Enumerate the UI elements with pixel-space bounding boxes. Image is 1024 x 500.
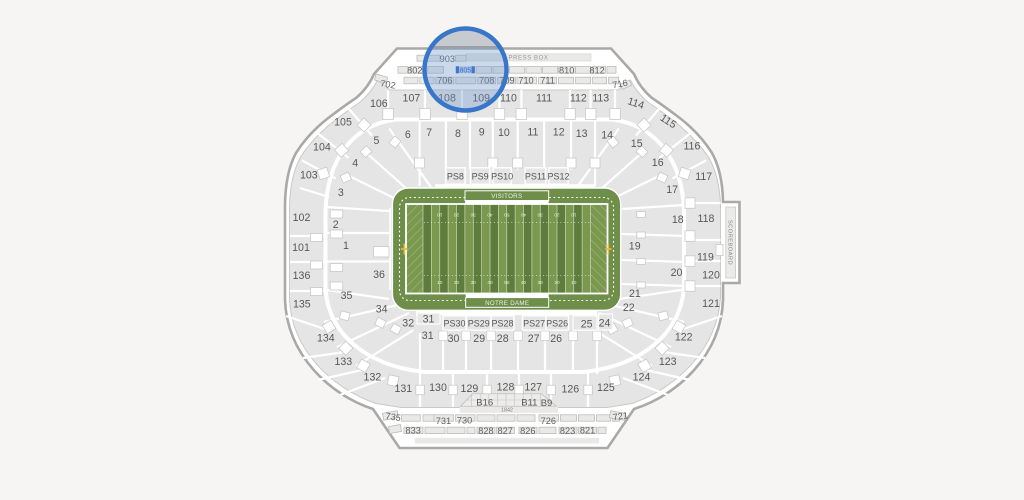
- svg-text:117: 117: [695, 171, 712, 183]
- svg-text:PS29: PS29: [468, 318, 490, 328]
- svg-text:10: 10: [571, 212, 577, 218]
- svg-text:710: 710: [518, 75, 533, 85]
- svg-text:40: 40: [521, 212, 527, 218]
- svg-text:21: 21: [629, 288, 641, 300]
- svg-text:3: 3: [338, 187, 344, 199]
- svg-text:31: 31: [422, 330, 434, 342]
- svg-text:823: 823: [560, 426, 575, 436]
- svg-text:121: 121: [702, 298, 720, 310]
- svg-text:31: 31: [423, 314, 435, 326]
- svg-text:PS30: PS30: [443, 318, 465, 328]
- svg-text:20: 20: [554, 280, 560, 286]
- svg-text:PS8: PS8: [447, 172, 464, 182]
- svg-text:110: 110: [500, 93, 517, 105]
- svg-text:2: 2: [333, 219, 339, 231]
- svg-text:125: 125: [597, 382, 615, 394]
- svg-text:131: 131: [394, 383, 412, 395]
- svg-text:136: 136: [293, 270, 311, 282]
- svg-text:PRESS BOX: PRESS BOX: [508, 56, 548, 62]
- svg-text:4: 4: [352, 158, 358, 170]
- svg-text:32: 32: [402, 318, 414, 330]
- svg-text:812: 812: [589, 66, 604, 76]
- svg-text:PS26: PS26: [546, 318, 568, 328]
- svg-text:802: 802: [407, 65, 422, 75]
- svg-text:30: 30: [470, 212, 476, 218]
- svg-text:132: 132: [364, 371, 382, 383]
- svg-text:735: 735: [385, 411, 402, 423]
- svg-text:1842: 1842: [501, 407, 513, 413]
- svg-text:PS11: PS11: [525, 172, 546, 182]
- svg-text:10: 10: [437, 212, 443, 218]
- svg-text:PS27: PS27: [523, 318, 545, 328]
- svg-text:102: 102: [293, 212, 311, 224]
- svg-text:PS12: PS12: [547, 172, 569, 182]
- svg-text:20: 20: [454, 212, 460, 218]
- svg-text:20: 20: [671, 267, 683, 279]
- svg-text:103: 103: [300, 169, 318, 181]
- svg-text:40: 40: [487, 280, 493, 286]
- svg-text:PS9: PS9: [472, 172, 489, 182]
- svg-text:118: 118: [698, 213, 715, 225]
- svg-text:123: 123: [659, 356, 677, 368]
- svg-text:7: 7: [426, 127, 432, 139]
- svg-text:5: 5: [373, 135, 379, 147]
- svg-text:113: 113: [592, 93, 609, 105]
- svg-text:28: 28: [497, 333, 509, 345]
- svg-text:50: 50: [504, 212, 510, 218]
- svg-text:119: 119: [697, 252, 714, 264]
- svg-text:10: 10: [571, 280, 577, 286]
- svg-text:12: 12: [553, 127, 565, 139]
- svg-text:124: 124: [633, 371, 651, 383]
- svg-text:107: 107: [403, 93, 421, 105]
- svg-text:40: 40: [487, 212, 493, 218]
- svg-text:126: 126: [561, 384, 579, 396]
- svg-text:104: 104: [313, 141, 331, 153]
- svg-text:40: 40: [521, 280, 527, 286]
- svg-text:128: 128: [497, 381, 515, 393]
- svg-text:30: 30: [471, 280, 477, 286]
- svg-text:18: 18: [672, 214, 684, 226]
- svg-text:827: 827: [498, 426, 513, 436]
- svg-text:15: 15: [631, 138, 643, 150]
- svg-text:10: 10: [498, 127, 510, 139]
- svg-text:116: 116: [683, 141, 700, 153]
- svg-text:20: 20: [454, 280, 460, 286]
- svg-text:101: 101: [292, 242, 310, 254]
- svg-text:SCOREBOARD: SCOREBOARD: [727, 220, 733, 265]
- svg-text:14: 14: [601, 129, 613, 141]
- svg-text:25: 25: [581, 319, 593, 331]
- svg-text:11: 11: [527, 127, 538, 139]
- svg-text:9: 9: [479, 127, 485, 139]
- svg-text:30: 30: [537, 212, 543, 218]
- svg-text:50: 50: [504, 280, 510, 286]
- svg-text:19: 19: [629, 241, 641, 253]
- svg-text:VISITORS: VISITORS: [491, 193, 522, 200]
- svg-text:135: 135: [293, 299, 311, 311]
- svg-text:134: 134: [317, 332, 335, 344]
- svg-text:35: 35: [341, 290, 353, 302]
- svg-text:133: 133: [334, 356, 352, 368]
- svg-text:16: 16: [652, 157, 664, 169]
- svg-text:34: 34: [376, 303, 388, 315]
- svg-text:PS28: PS28: [491, 318, 513, 328]
- svg-text:24: 24: [599, 318, 611, 330]
- svg-text:30: 30: [538, 280, 544, 286]
- svg-text:29: 29: [473, 333, 485, 345]
- svg-text:833: 833: [406, 425, 421, 435]
- svg-text:730: 730: [457, 415, 472, 425]
- svg-text:127: 127: [524, 381, 542, 393]
- svg-text:8: 8: [455, 128, 461, 140]
- svg-text:26: 26: [550, 333, 562, 345]
- svg-text:6: 6: [405, 129, 411, 141]
- svg-text:731: 731: [436, 416, 451, 426]
- svg-text:810: 810: [559, 65, 574, 75]
- svg-text:129: 129: [461, 383, 479, 395]
- svg-text:PS10: PS10: [491, 172, 513, 182]
- svg-text:17: 17: [666, 184, 678, 196]
- svg-text:30: 30: [448, 333, 460, 345]
- svg-text:721: 721: [612, 410, 629, 422]
- svg-text:130: 130: [429, 382, 447, 394]
- svg-text:1: 1: [343, 240, 349, 252]
- svg-text:821: 821: [580, 425, 595, 435]
- svg-text:711: 711: [540, 76, 555, 86]
- svg-text:120: 120: [702, 270, 720, 282]
- svg-text:10: 10: [437, 280, 443, 286]
- svg-text:726: 726: [541, 416, 556, 426]
- svg-text:13: 13: [576, 128, 588, 140]
- svg-text:NOTRE DAME: NOTRE DAME: [485, 300, 529, 307]
- svg-text:22: 22: [623, 302, 635, 314]
- svg-text:828: 828: [478, 426, 493, 436]
- svg-text:27: 27: [528, 333, 540, 345]
- svg-text:105: 105: [334, 116, 352, 128]
- svg-text:826: 826: [520, 426, 535, 436]
- svg-text:106: 106: [370, 98, 388, 110]
- svg-text:20: 20: [554, 212, 560, 218]
- svg-text:112: 112: [570, 93, 587, 105]
- svg-text:122: 122: [675, 332, 693, 344]
- svg-text:111: 111: [536, 93, 552, 105]
- svg-text:36: 36: [373, 269, 385, 281]
